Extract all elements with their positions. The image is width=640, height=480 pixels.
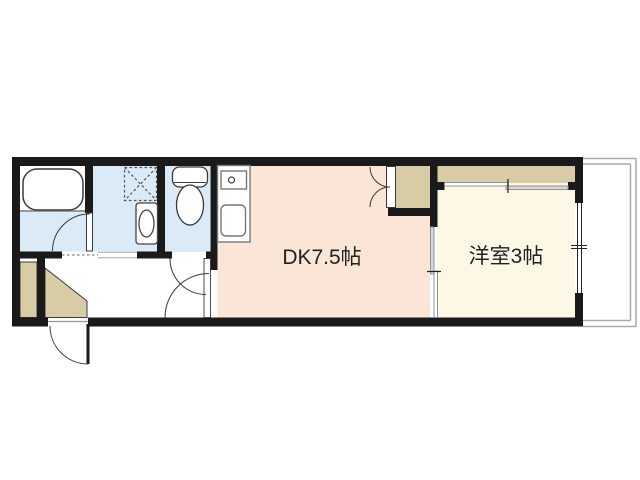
balcony bbox=[583, 159, 636, 327]
closet-track-stub-left bbox=[438, 182, 445, 190]
shoe-box bbox=[45, 268, 87, 318]
entrance-door-arc bbox=[50, 326, 88, 364]
western-right-wall-upper bbox=[575, 157, 583, 203]
floor-plan-drawing: DK7.5帖 洋室3帖 bbox=[0, 0, 640, 480]
hall-north-wall-left bbox=[12, 252, 62, 259]
hall-north-wall-mid bbox=[137, 252, 172, 259]
toilet-tank bbox=[173, 167, 208, 187]
western-room-label: 洋室3帖 bbox=[469, 245, 544, 268]
kitchen-sink bbox=[221, 205, 246, 236]
hall-north-wall-right bbox=[206, 252, 218, 259]
entrance-door-leaf bbox=[87, 324, 90, 364]
dk-door-arc bbox=[165, 274, 209, 318]
washbasin bbox=[136, 203, 158, 244]
closet-slider-panel-left bbox=[445, 183, 508, 187]
bathtub bbox=[23, 169, 83, 210]
washroom-toilet-wall bbox=[157, 166, 165, 259]
closet-slider-panel-right bbox=[506, 186, 568, 190]
room-floors bbox=[20, 166, 575, 318]
floor-plan-page: DK7.5帖 洋室3帖 bbox=[0, 0, 640, 480]
western-right-wall-lower bbox=[575, 293, 583, 327]
kitchen bbox=[218, 166, 251, 243]
closet-track-stub-right bbox=[568, 182, 575, 190]
bath-washroom-wall bbox=[85, 166, 93, 213]
washroom-opening bbox=[98, 252, 137, 259]
entrance-storage bbox=[20, 262, 87, 318]
dk-western-panel-upper bbox=[431, 227, 435, 274]
stove-burner bbox=[229, 177, 235, 183]
bathroom-door-leaf bbox=[87, 213, 93, 251]
entrance-door bbox=[50, 324, 90, 364]
left-wall bbox=[12, 157, 20, 327]
hallway-doors bbox=[165, 259, 211, 318]
toilet-bowl bbox=[177, 185, 204, 225]
western-closet bbox=[438, 166, 576, 183]
dk-closet bbox=[396, 166, 431, 208]
toilet-dk-door-leaves bbox=[204, 259, 211, 318]
shoe-cabinet bbox=[20, 262, 37, 318]
dk-western-panel-lower bbox=[434, 271, 438, 318]
bottom-wall-left bbox=[12, 318, 48, 327]
top-wall bbox=[12, 157, 583, 166]
dk-western-wall bbox=[430, 166, 438, 227]
bottom-wall-main bbox=[88, 318, 583, 327]
entry-wall-stub bbox=[37, 259, 45, 318]
dk-label: DK7.5帖 bbox=[282, 246, 361, 269]
